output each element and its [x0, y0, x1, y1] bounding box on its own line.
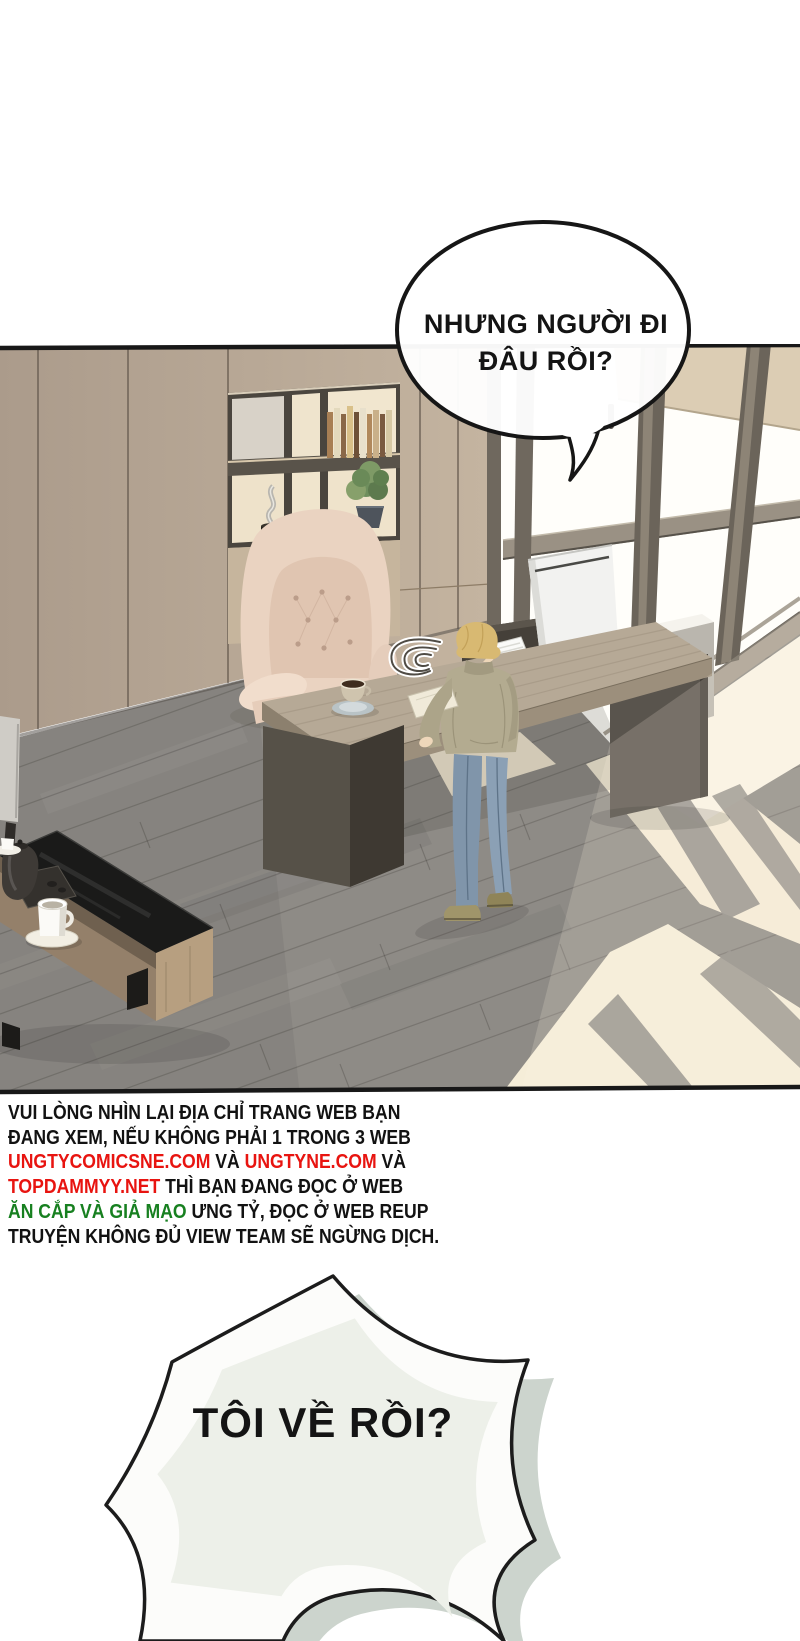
- panel-border-top: [0, 345, 800, 348]
- window-handle: [608, 404, 614, 424]
- sweater-torso: [441, 665, 519, 754]
- warning-line: ĐANG XEM, NẾU KHÔNG PHẢI 1 TRONG 3 WEB: [8, 1126, 439, 1151]
- warning-line: TRUYỆN KHÔNG ĐỦ VIEW TEAM SẼ NGỪNG DỊCH.: [8, 1225, 439, 1250]
- warning-text: VUI LÒNG NHÌN LẠI ĐỊA CHỈ TRANG WEB BẠNĐ…: [8, 1101, 439, 1249]
- warning-line: VUI LÒNG NHÌN LẠI ĐỊA CHỈ TRANG WEB BẠN: [8, 1101, 439, 1126]
- speech-bubble-text-line1: NHƯNG NGƯỜI ĐI: [424, 308, 668, 339]
- warning-line: ĂN CẮP VÀ GIẢ MẠO ƯNG TỶ, ĐỌC Ở WEB REUP: [8, 1200, 439, 1225]
- burst-bubble: TÔI VỀ RỒI?: [106, 1276, 561, 1641]
- comic-page: NHƯNG NGƯỜI ĐI ĐÂU RỒI? TÔI VỀ RỒI? VUI …: [0, 0, 800, 1641]
- desk-left-pedestal: [263, 725, 404, 887]
- scene-illustration: [0, 344, 800, 1096]
- burst-bubble-text: TÔI VỀ RỒI?: [193, 1398, 454, 1446]
- warning-line: TOPDAMMYY.NET THÌ BẠN ĐANG ĐỌC Ở WEB: [8, 1175, 439, 1200]
- warning-line: UNGTYCOMICSNE.COM VÀ UNGTYNE.COM VÀ: [8, 1150, 439, 1175]
